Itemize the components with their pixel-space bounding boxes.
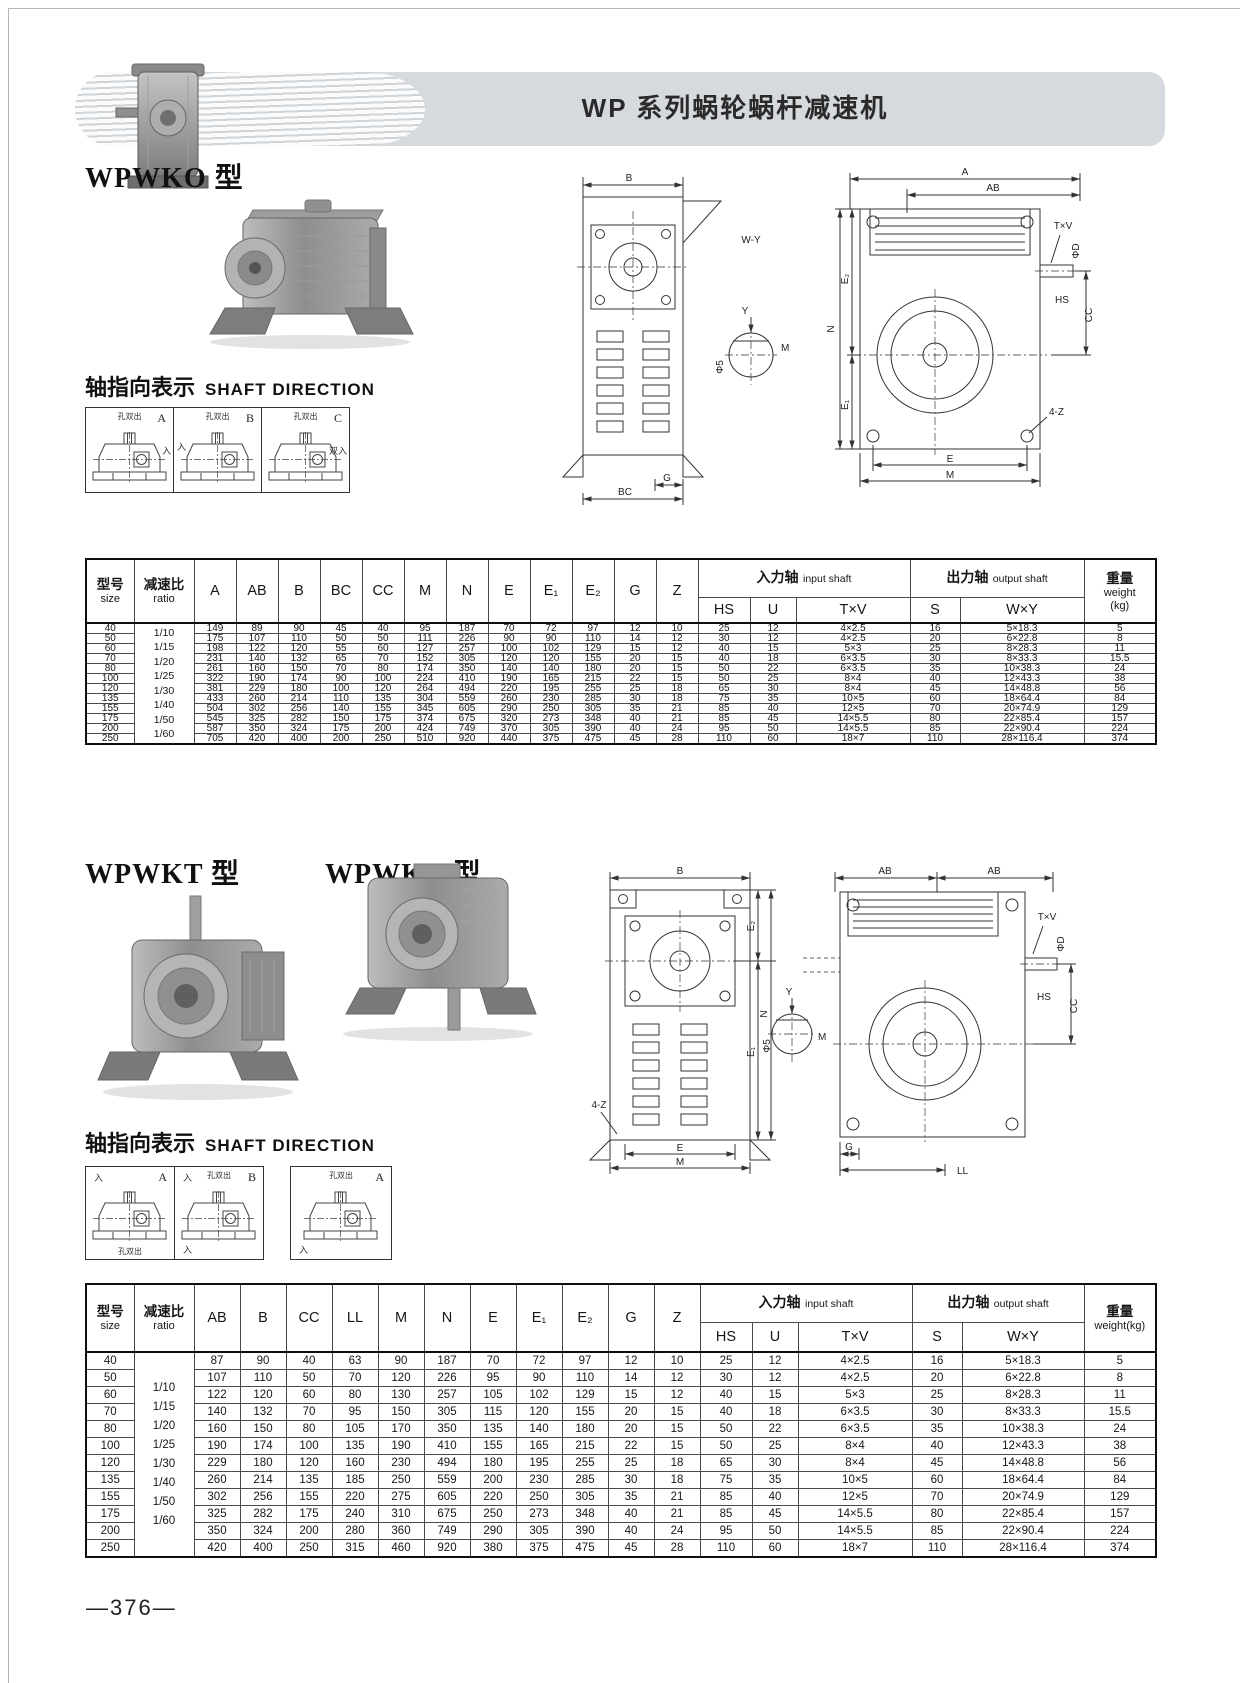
spec-row: 802611601507080174350140140180201550226×… (86, 664, 1156, 674)
gearbox-front-icon (180, 1191, 258, 1245)
dim-cell: 15 (656, 654, 698, 664)
shaft-direction-label: 孔双出 (118, 411, 142, 422)
dim-cell: 45 (752, 1506, 798, 1523)
dim-cell: 89 (236, 623, 278, 634)
dim-cell: 5×3 (796, 644, 910, 654)
shaft-column-header: S (912, 1322, 962, 1352)
header-zh: 型号 (87, 576, 134, 593)
dim-label-e: E (677, 1143, 684, 1154)
dim-cell: 175 (320, 724, 362, 734)
spec-row: 1354332602141101353045592602302853018753… (86, 694, 1156, 704)
dim-label-g: G (845, 1142, 853, 1153)
dim-cell: 4×2.5 (796, 623, 910, 634)
dim-cell: 215 (562, 1438, 608, 1455)
dim-column-header: N (424, 1284, 470, 1352)
gearbox-front-icon (91, 432, 169, 486)
header-en: input shaft (805, 1298, 853, 1310)
page-title: WP 系列蜗轮蜗杆减速机 (555, 88, 915, 125)
dim-label-ab: AB (986, 183, 1000, 194)
dim-cell: 230 (516, 1472, 562, 1489)
dim-cell: 18×64.4 (962, 1472, 1084, 1489)
dim-cell: 70 (320, 664, 362, 674)
dim-column-header: CC (286, 1284, 332, 1352)
dim-cell: 15 (654, 1421, 700, 1438)
weight-cell: 157 (1084, 714, 1156, 724)
wpwkv-product-photo (330, 856, 545, 1046)
spec-row: 1555043022561401553456052902503053521854… (86, 704, 1156, 714)
dim-cell: 35 (750, 694, 796, 704)
dim-cell: 390 (562, 1523, 608, 1540)
dim-cell: 135 (332, 1438, 378, 1455)
dim-cell: 100 (362, 674, 404, 684)
dim-cell: 305 (530, 724, 572, 734)
dim-cell: 40 (700, 1387, 752, 1404)
dim-cell: 132 (240, 1404, 286, 1421)
gearbox-front-icon (179, 432, 257, 486)
dim-cell: 90 (320, 674, 362, 684)
shaft-direction-box-a2: 孔双出 A 入 (290, 1166, 392, 1260)
dim-label-4z: 4-Z (592, 1100, 607, 1111)
dim-cell: 12 (654, 1387, 700, 1404)
shaft-direction-box-a: 入 A 孔双出 (85, 1166, 175, 1260)
dim-cell: 25 (910, 644, 960, 654)
shaft-column-header: W×Y (960, 597, 1084, 623)
header-zh: 入力轴 (759, 1294, 801, 1310)
dim-cell: 348 (572, 714, 614, 724)
dim-cell: 494 (446, 684, 488, 694)
dim-label-hs: HS (1055, 295, 1069, 306)
weight-cell: 38 (1084, 1438, 1156, 1455)
dim-cell: 559 (424, 1472, 470, 1489)
dim-cell: 90 (378, 1352, 424, 1370)
dim-cell: 135 (286, 1472, 332, 1489)
dim-cell: 70 (470, 1352, 516, 1370)
dim-cell: 45 (910, 684, 960, 694)
dim-cell: 380 (470, 1540, 516, 1558)
ratio-value: 1/40 (135, 698, 194, 713)
size-cell: 200 (86, 724, 134, 734)
dim-cell: 5×18.3 (960, 623, 1084, 634)
dim-cell: 14×5.5 (796, 714, 910, 724)
dim-cell: 12×43.3 (962, 1438, 1084, 1455)
header-zh: 出力轴 (947, 1294, 989, 1310)
dim-cell: 12×43.3 (960, 674, 1084, 684)
ratio-value: 1/20 (135, 655, 194, 670)
dim-cell: 127 (404, 644, 446, 654)
shaft-direction-box-a: 孔双出 A 入 (85, 407, 174, 493)
dim-cell: 12 (752, 1370, 798, 1387)
dim-cell: 10×38.3 (960, 664, 1084, 674)
dim-label-a: A (962, 167, 969, 178)
spec-row: 401/101/151/201/251/301/401/501/60149899… (86, 623, 1156, 634)
dim-cell: 22×85.4 (960, 714, 1084, 724)
shaft-column-header: HS (700, 1322, 752, 1352)
spec-row: 1753252821752403106752502733484021854514… (86, 1506, 1156, 1523)
dim-label-ll: LL (957, 1166, 969, 1177)
dim-cell: 50 (750, 724, 796, 734)
dim-cell: 18×7 (796, 734, 910, 745)
dim-cell: 15 (614, 644, 656, 654)
spec-row: 1553022561552202756052202503053521854012… (86, 1489, 1156, 1506)
dim-cell: 50 (752, 1523, 798, 1540)
dim-cell: 10 (654, 1352, 700, 1370)
dim-cell: 10 (656, 623, 698, 634)
shaft-direction-en: SHAFT DIRECTION (205, 380, 375, 399)
dim-cell: 305 (424, 1404, 470, 1421)
shaft-direction-box-b: 孔双出 B 入 (173, 407, 262, 493)
shaft-column-header: U (752, 1322, 798, 1352)
header-en: output shaft (994, 1298, 1049, 1310)
dim-cell: 150 (320, 714, 362, 724)
dim-label-phid: ΦD (1056, 936, 1067, 951)
spec-row: 1755453252821501753746753202733484021854… (86, 714, 1156, 724)
dim-cell: 6×3.5 (796, 654, 910, 664)
dim-column-header: G (608, 1284, 654, 1352)
dim-cell: 25 (912, 1387, 962, 1404)
dim-cell: 70 (910, 704, 960, 714)
dim-cell: 190 (488, 674, 530, 684)
size-cell: 70 (86, 654, 134, 664)
dim-cell: 100 (286, 1438, 332, 1455)
gearbox-front-icon (302, 1191, 380, 1245)
dim-cell: 214 (278, 694, 320, 704)
dim-cell: 324 (240, 1523, 286, 1540)
dim-cell: 220 (332, 1489, 378, 1506)
dim-cell: 85 (910, 724, 960, 734)
dim-cell: 320 (488, 714, 530, 724)
dim-cell: 140 (530, 664, 572, 674)
shaft-direction-letter: B (248, 1170, 256, 1185)
dim-label-b: B (626, 173, 633, 184)
dim-cell: 45 (912, 1455, 962, 1472)
wpwkt-technical-drawing: B 4-Z E₂ E₁ N E M Y M Φ5 AB AB T×V ΦD HS… (585, 862, 1095, 1197)
dim-cell: 175 (286, 1506, 332, 1523)
dim-cell: 605 (446, 704, 488, 714)
dim-cell: 90 (516, 1370, 562, 1387)
dim-cell: 111 (404, 634, 446, 644)
dim-cell: 160 (332, 1455, 378, 1472)
dim-cell: 70 (362, 654, 404, 664)
dim-cell: 60 (362, 644, 404, 654)
dim-label-phi5: Φ5 (762, 1039, 773, 1053)
dim-cell: 85 (700, 1489, 752, 1506)
dim-cell: 22 (750, 664, 796, 674)
dim-cell: 8×33.3 (960, 654, 1084, 664)
spec-row: 120229180120160230494180195255251865308×… (86, 1455, 1156, 1472)
dim-column-header: Z (654, 1284, 700, 1352)
dim-cell: 587 (194, 724, 236, 734)
dim-cell: 20×74.9 (962, 1489, 1084, 1506)
dim-cell: 12×5 (798, 1489, 912, 1506)
dim-cell: 275 (378, 1489, 424, 1506)
dim-cell: 8×28.3 (962, 1387, 1084, 1404)
dim-cell: 40 (286, 1352, 332, 1370)
dim-cell: 282 (278, 714, 320, 724)
dim-cell: 250 (286, 1540, 332, 1558)
shaft-direction-label: 孔双出 (329, 1170, 353, 1181)
dim-cell: 6×3.5 (796, 664, 910, 674)
wpwko-technical-drawing: B G BC W-Y Y M Φ5 A AB N E₂ E₁ T×V ΦD HS… (555, 165, 1095, 510)
dim-cell: 290 (488, 704, 530, 714)
shaft-direction-label: 孔双出 (118, 1246, 142, 1257)
dim-cell: 21 (654, 1506, 700, 1523)
dim-cell: 60 (752, 1540, 798, 1558)
wpwko-product-photo (185, 196, 435, 354)
dim-cell: 175 (194, 634, 236, 644)
dim-cell: 30 (912, 1404, 962, 1421)
dim-column-header: AB (236, 559, 278, 623)
dim-cell: 35 (910, 664, 960, 674)
dim-column-header: E (470, 1284, 516, 1352)
dim-cell: 50 (286, 1370, 332, 1387)
header-en: input shaft (803, 573, 851, 585)
ratio-value: 1/15 (135, 1398, 194, 1417)
dim-cell: 10×5 (796, 694, 910, 704)
dim-label-wy: W-Y (741, 235, 761, 246)
header-en: (kg) (1085, 600, 1156, 613)
dim-cell: 120 (378, 1370, 424, 1387)
dim-cell: 87 (194, 1352, 240, 1370)
dim-cell: 28×116.4 (960, 734, 1084, 745)
shaft-direction-label: 入 (183, 1171, 192, 1184)
dim-cell: 140 (236, 654, 278, 664)
dim-column-header: CC (362, 559, 404, 623)
dim-cell: 231 (194, 654, 236, 664)
dim-cell: 14×5.5 (796, 724, 910, 734)
spec-row: 2005873503241752004247493703053904024955… (86, 724, 1156, 734)
dim-cell: 60 (750, 734, 796, 745)
dim-cell: 200 (286, 1523, 332, 1540)
ratio-value: 1/50 (135, 713, 194, 728)
dim-cell: 40 (614, 714, 656, 724)
spec-row: 100190174100135190410155165215221550258×… (86, 1438, 1156, 1455)
dim-cell: 230 (530, 694, 572, 704)
table-header: 型号 size 减速比 ratio AABBBCCCMNEE₁E₂GZ 入力轴 … (86, 559, 1156, 623)
dim-cell: 70 (488, 623, 530, 634)
dim-cell: 257 (424, 1387, 470, 1404)
dim-cell: 107 (236, 634, 278, 644)
size-cell: 250 (86, 1540, 134, 1558)
shaft-column-header: T×V (798, 1322, 912, 1352)
dim-cell: 226 (424, 1370, 470, 1387)
dim-cell: 107 (194, 1370, 240, 1387)
dim-cell: 25 (608, 1455, 654, 1472)
shaft-column-header: S (910, 597, 960, 623)
dim-cell: 40 (698, 644, 750, 654)
spec-row: 2504204002503154609203803754754528110601… (86, 1540, 1156, 1558)
dim-cell: 120 (488, 654, 530, 664)
dim-cell: 749 (446, 724, 488, 734)
dim-cell: 60 (912, 1472, 962, 1489)
dim-cell: 273 (516, 1506, 562, 1523)
dim-cell: 80 (332, 1387, 378, 1404)
weight-cell: 84 (1084, 694, 1156, 704)
size-cell: 100 (86, 674, 134, 684)
dim-cell: 40 (700, 1404, 752, 1421)
dim-cell: 381 (194, 684, 236, 694)
dim-cell: 375 (516, 1540, 562, 1558)
shaft-direction-letter: C (334, 411, 342, 426)
dim-cell: 14×5.5 (798, 1506, 912, 1523)
dim-cell: 18 (656, 684, 698, 694)
shaft-direction-label: 入 (94, 1171, 103, 1184)
dim-cell: 30 (700, 1370, 752, 1387)
dim-cell: 460 (378, 1540, 424, 1558)
dim-cell: 273 (530, 714, 572, 724)
dim-cell: 35 (614, 704, 656, 714)
size-cell: 60 (86, 1387, 134, 1404)
dim-cell: 95 (470, 1370, 516, 1387)
dim-cell: 420 (236, 734, 278, 745)
dim-cell: 440 (488, 734, 530, 745)
dim-label-ab2: AB (987, 866, 1001, 877)
dim-cell: 110 (278, 634, 320, 644)
spec-row: 1003221901749010022441019016521522155025… (86, 674, 1156, 684)
dim-cell: 12 (614, 623, 656, 634)
spec-row: 401/101/151/201/251/301/401/501/60879040… (86, 1352, 1156, 1370)
dim-cell: 256 (278, 704, 320, 714)
dim-cell: 25 (750, 674, 796, 684)
dim-label-b: B (677, 866, 684, 877)
dim-cell: 187 (424, 1352, 470, 1370)
dim-cell: 97 (572, 623, 614, 634)
dim-cell: 95 (700, 1523, 752, 1540)
spec-row: 2507054204002002505109204403754754528110… (86, 734, 1156, 745)
dim-cell: 45 (750, 714, 796, 724)
dim-cell: 22×90.4 (962, 1523, 1084, 1540)
dim-cell: 705 (194, 734, 236, 745)
dim-cell: 226 (446, 634, 488, 644)
dim-cell: 174 (278, 674, 320, 684)
wpwkt-product-photo (90, 890, 305, 1108)
ratio-value: 1/10 (135, 1379, 194, 1398)
dim-column-header: AB (194, 1284, 240, 1352)
dim-cell: 15 (608, 1387, 654, 1404)
dim-cell: 85 (698, 714, 750, 724)
dim-cell: 12 (608, 1352, 654, 1370)
shaft-direction-zh: 轴指向表示 (85, 1131, 195, 1156)
dim-cell: 12×5 (796, 704, 910, 714)
dim-cell: 675 (424, 1506, 470, 1523)
dim-cell: 12 (750, 623, 796, 634)
dim-cell: 25 (614, 684, 656, 694)
size-cell: 135 (86, 1472, 134, 1489)
dim-cell: 195 (530, 684, 572, 694)
spec-row: 702311401326570152305120120155201540186×… (86, 654, 1156, 664)
dim-cell: 122 (194, 1387, 240, 1404)
dim-cell: 261 (194, 664, 236, 674)
dim-cell: 65 (698, 684, 750, 694)
dim-cell: 30 (608, 1472, 654, 1489)
header-en: ratio (135, 593, 194, 606)
dim-cell: 110 (562, 1370, 608, 1387)
dim-cell: 95 (698, 724, 750, 734)
dim-cell: 14×48.8 (962, 1455, 1084, 1472)
dim-cell: 20 (614, 654, 656, 664)
header-zh: 重量 (1085, 570, 1156, 587)
dim-label-m: M (676, 1157, 684, 1168)
catalog-page: WP 系列蜗轮蜗杆减速机 WPWKO 型 (0, 0, 1240, 1683)
wpwko-heading: WPWKO 型 (85, 156, 244, 196)
dim-label-cc: CC (1069, 999, 1080, 1013)
size-cell: 135 (86, 694, 134, 704)
dim-cell: 28 (654, 1540, 700, 1558)
spec-row: 601981221205560127257100102129151240155×… (86, 644, 1156, 654)
dim-cell: 150 (240, 1421, 286, 1438)
dim-cell: 40 (912, 1438, 962, 1455)
dim-cell: 105 (470, 1387, 516, 1404)
dim-cell: 65 (700, 1455, 752, 1472)
dim-cell: 155 (286, 1489, 332, 1506)
dim-cell: 55 (320, 644, 362, 654)
dim-cell: 25 (700, 1352, 752, 1370)
size-column-header: 型号 size (86, 559, 134, 623)
dim-cell: 4×2.5 (796, 634, 910, 644)
size-cell: 155 (86, 1489, 134, 1506)
input-shaft-header: 入力轴 input shaft (698, 559, 910, 597)
weight-cell: 5 (1084, 623, 1156, 634)
dim-cell: 102 (516, 1387, 562, 1404)
dim-cell: 20 (910, 634, 960, 644)
weight-cell: 5 (1084, 1352, 1156, 1370)
dim-cell: 250 (470, 1506, 516, 1523)
dim-cell: 65 (320, 654, 362, 664)
dim-cell: 35 (912, 1421, 962, 1438)
dim-cell: 6×3.5 (798, 1421, 912, 1438)
wpwko-spec-table: 型号 size 减速比 ratio AABBBCCCMNEE₁E₂GZ 入力轴 … (85, 558, 1157, 745)
weight-column-header: 重量 weight(kg) (1084, 1284, 1156, 1352)
dim-cell: 12 (654, 1370, 700, 1387)
ratio-value: 1/10 (135, 626, 194, 641)
weight-cell: 129 (1084, 1489, 1156, 1506)
dim-cell: 410 (424, 1438, 470, 1455)
dim-cell: 100 (320, 684, 362, 694)
dim-cell: 475 (562, 1540, 608, 1558)
dim-cell: 30 (698, 634, 750, 644)
dim-cell: 120 (516, 1404, 562, 1421)
dim-cell: 400 (240, 1540, 286, 1558)
dim-cell: 155 (362, 704, 404, 714)
dim-cell: 120 (286, 1455, 332, 1472)
dim-column-header: E₂ (572, 559, 614, 623)
dim-label-tv: T×V (1054, 221, 1073, 232)
dim-cell: 75 (698, 694, 750, 704)
dim-cell: 140 (488, 664, 530, 674)
ratio-column-header: 减速比 ratio (134, 559, 194, 623)
dim-cell: 198 (194, 644, 236, 654)
shaft-direction-label: 孔双出 (206, 411, 230, 422)
input-shaft-header: 入力轴 input shaft (700, 1284, 912, 1322)
dim-cell: 97 (562, 1352, 608, 1370)
dim-cell: 14 (614, 634, 656, 644)
shaft-column-header: U (750, 597, 796, 623)
dim-cell: 165 (530, 674, 572, 684)
dim-cell: 8×4 (796, 674, 910, 684)
dim-cell: 15 (752, 1387, 798, 1404)
dim-cell: 322 (194, 674, 236, 684)
dim-cell: 22 (608, 1438, 654, 1455)
dim-cell: 285 (572, 694, 614, 704)
size-cell: 50 (86, 1370, 134, 1387)
dim-label-e1: E₁ (746, 1046, 757, 1057)
dim-cell: 130 (378, 1387, 424, 1404)
dim-cell: 18×64.4 (960, 694, 1084, 704)
dim-cell: 75 (700, 1472, 752, 1489)
dim-cell: 6×22.8 (962, 1370, 1084, 1387)
dim-cell: 110 (700, 1540, 752, 1558)
shaft-direction-heading-2: 轴指向表示SHAFT DIRECTION (85, 1126, 375, 1158)
dim-column-header: E₂ (562, 1284, 608, 1352)
